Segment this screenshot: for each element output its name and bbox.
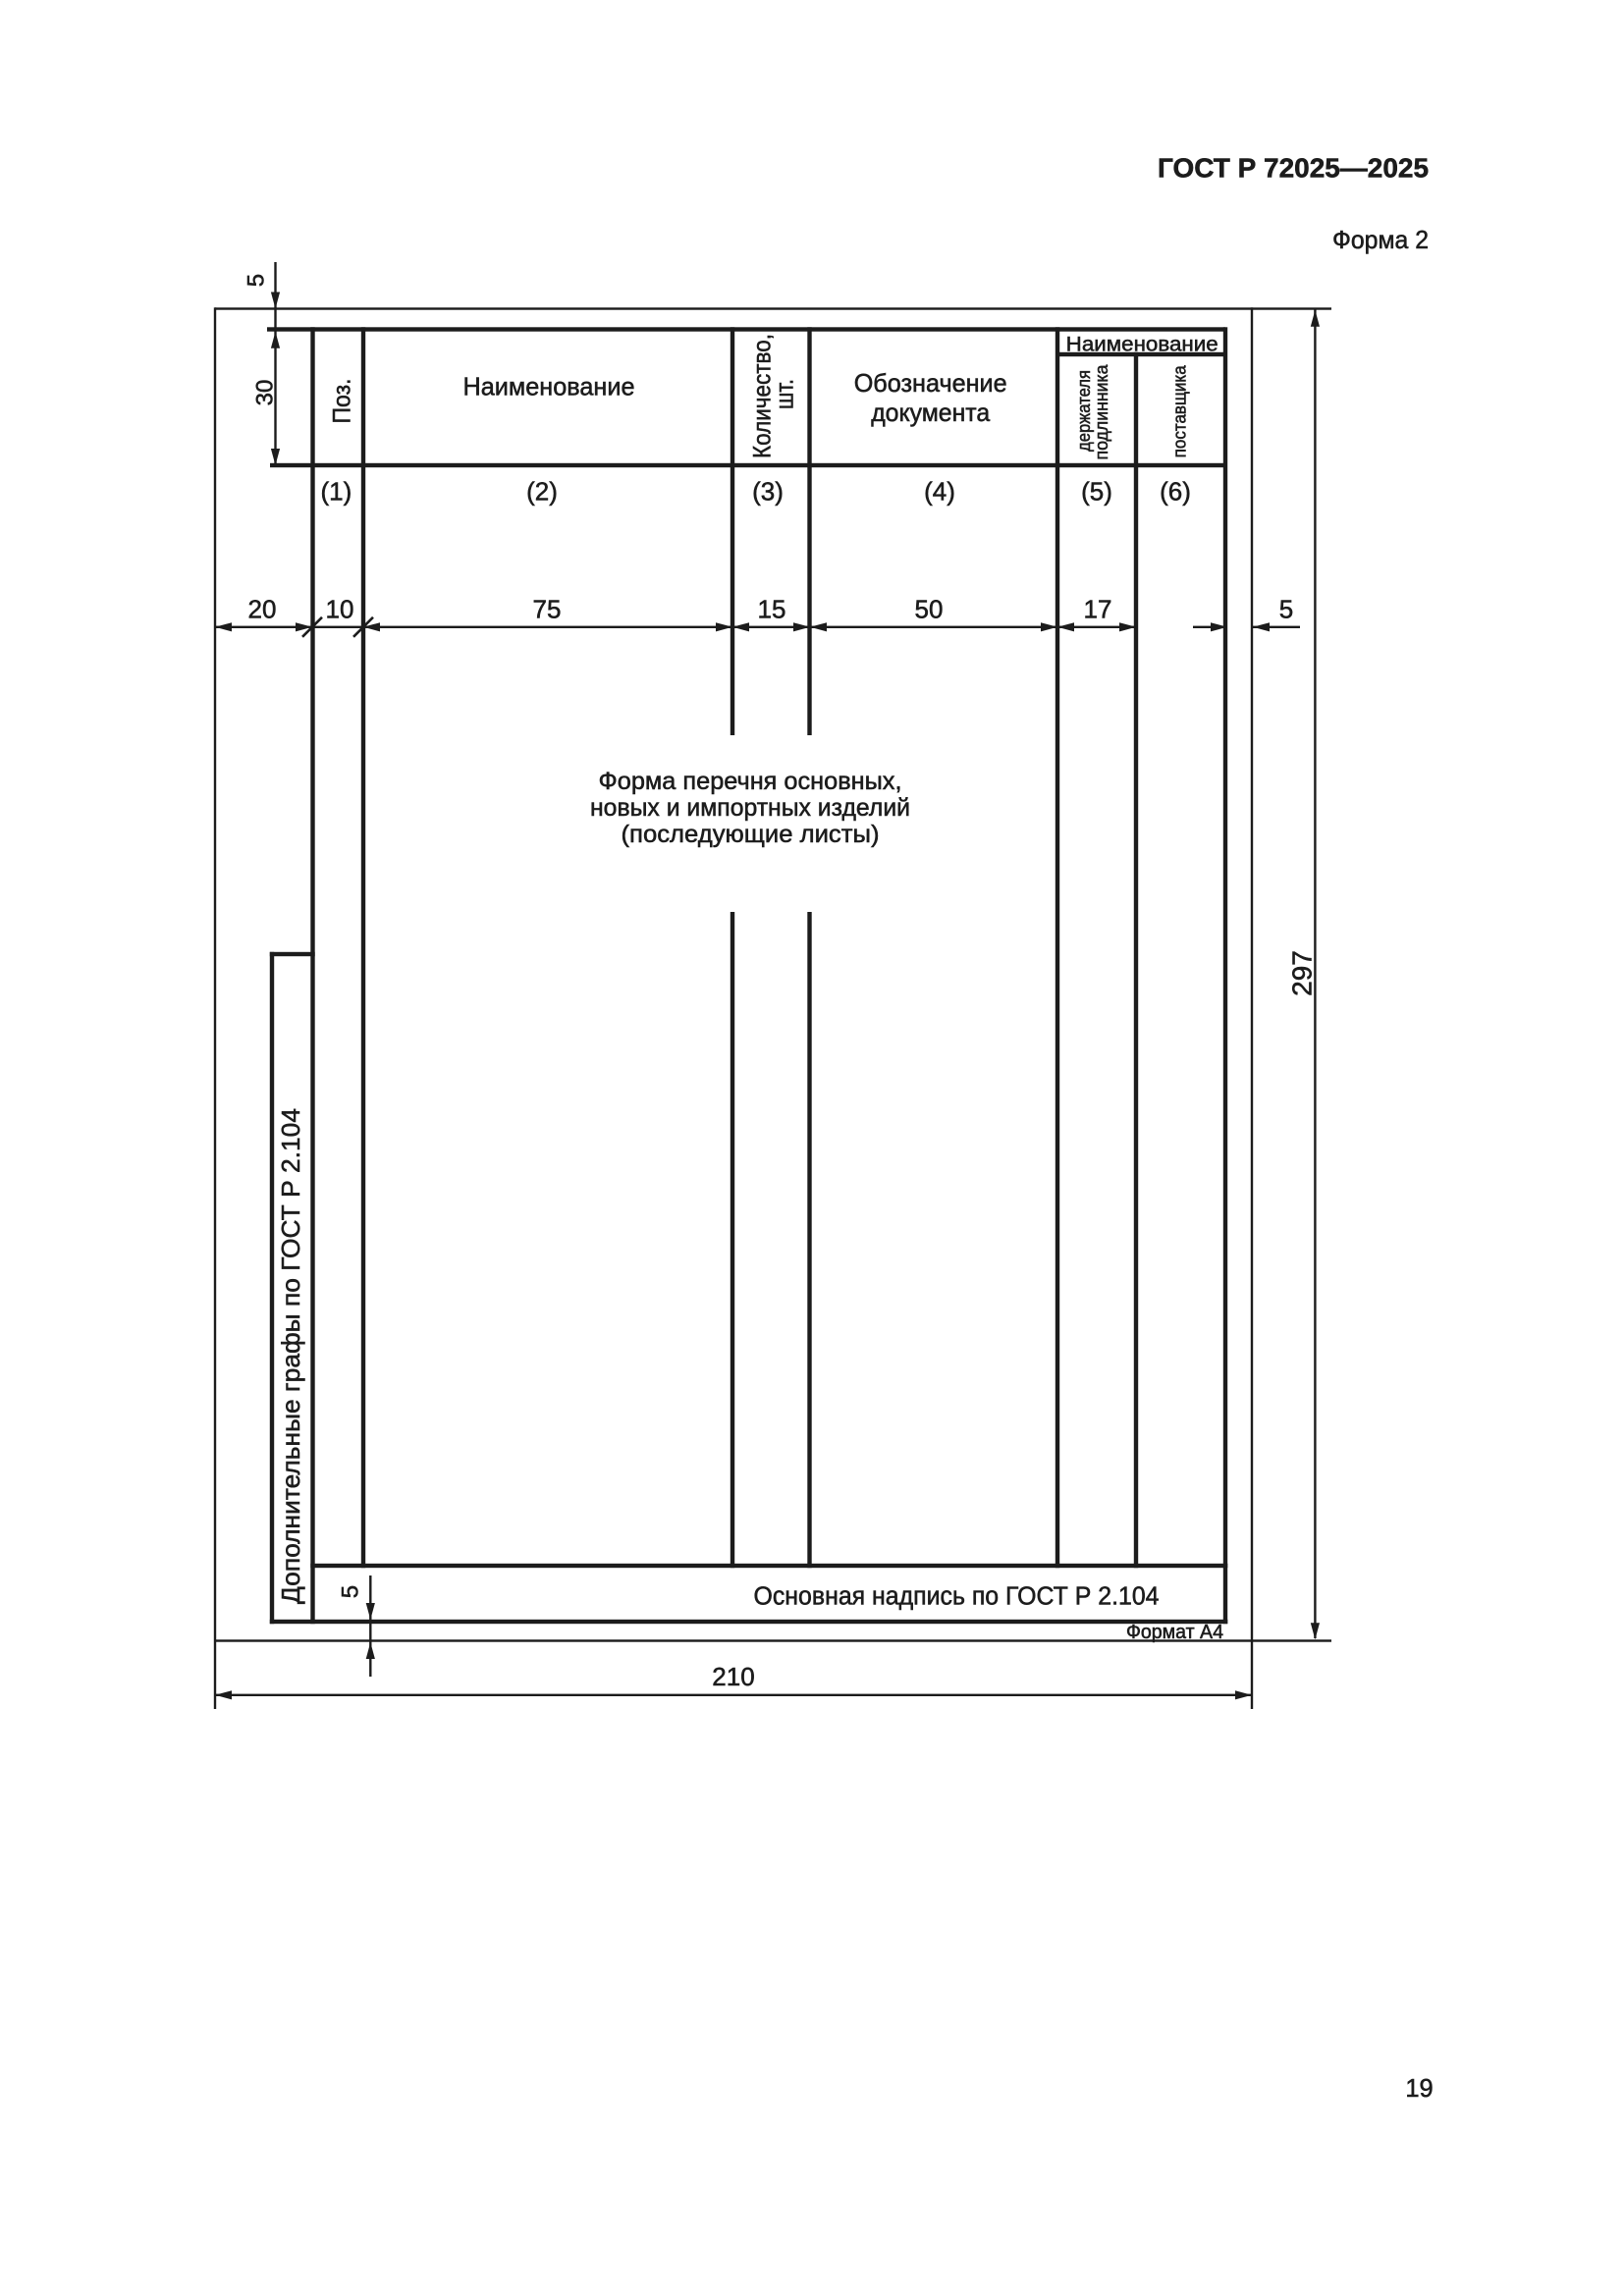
svg-text:5: 5 [244, 274, 270, 287]
svg-text:(4): (4) [924, 477, 955, 507]
svg-text:5: 5 [1279, 595, 1293, 624]
svg-text:ГОСТ Р 72025—2025: ГОСТ Р 72025—2025 [1158, 153, 1429, 184]
svg-text:17: 17 [1084, 595, 1112, 624]
svg-text:Формат А4: Формат А4 [1126, 1622, 1223, 1643]
svg-text:297: 297 [1287, 950, 1318, 996]
svg-text:10: 10 [326, 595, 354, 624]
svg-text:подлинника: подлинника [1092, 364, 1111, 460]
svg-text:(5): (5) [1081, 477, 1112, 507]
svg-text:Форма перечня основных,: Форма перечня основных, [599, 768, 902, 795]
svg-text:Форма 2: Форма 2 [1332, 225, 1429, 254]
svg-text:документа: документа [871, 398, 991, 427]
svg-text:шт.: шт. [772, 379, 799, 409]
svg-text:30: 30 [252, 380, 279, 406]
svg-text:Наименование: Наименование [463, 372, 635, 401]
svg-text:Обозначение: Обозначение [854, 368, 1007, 398]
svg-text:Основная надпись по ГОСТ Р 2.1: Основная надпись по ГОСТ Р 2.104 [754, 1583, 1160, 1611]
svg-text:Наименование: Наименование [1066, 333, 1218, 356]
svg-text:(3): (3) [752, 477, 784, 507]
svg-text:(6): (6) [1160, 477, 1191, 507]
svg-text:5: 5 [338, 1585, 364, 1598]
svg-text:20: 20 [248, 595, 277, 624]
svg-text:держателя: держателя [1074, 370, 1094, 452]
svg-text:75: 75 [533, 595, 562, 624]
svg-text:(1): (1) [321, 477, 352, 507]
svg-text:поставщика: поставщика [1170, 364, 1190, 457]
svg-text:Поз.: Поз. [329, 379, 356, 424]
svg-text:19: 19 [1405, 2075, 1433, 2103]
svg-text:(2): (2) [526, 477, 558, 507]
svg-text:210: 210 [712, 1662, 754, 1691]
svg-text:15: 15 [758, 595, 786, 624]
svg-text:50: 50 [915, 595, 944, 624]
svg-text:новых и импортных изделий: новых и импортных изделий [590, 794, 910, 822]
svg-text:(последующие листы): (последующие листы) [622, 821, 880, 848]
svg-text:Дополнительные графы по ГОСТ Р: Дополнительные графы по ГОСТ Р 2.104 [276, 1108, 305, 1604]
